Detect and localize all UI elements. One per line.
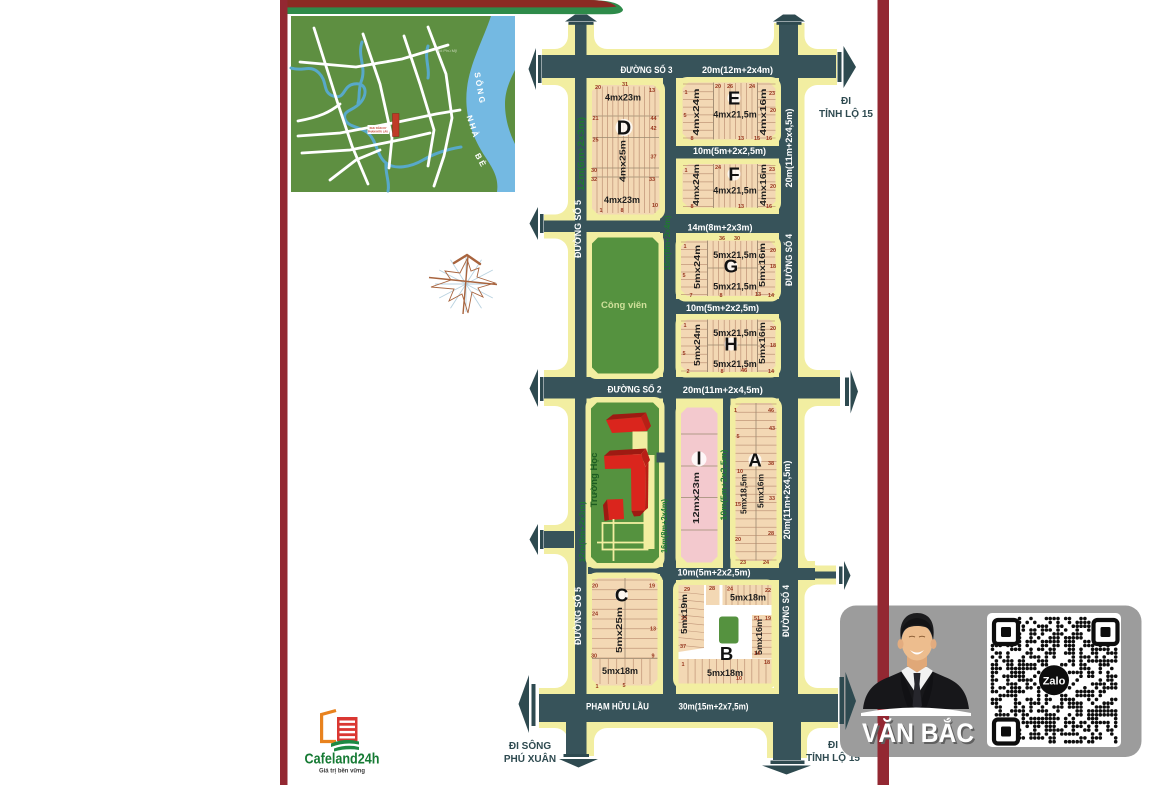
svg-text:33: 33 (681, 616, 687, 622)
svg-text:20: 20 (770, 108, 776, 114)
svg-text:13: 13 (738, 204, 744, 210)
svg-text:33: 33 (649, 177, 655, 183)
svg-text:5mx19m: 5mx19m (680, 594, 689, 634)
svg-text:9: 9 (651, 654, 654, 660)
svg-text:18: 18 (764, 660, 770, 666)
svg-text:1: 1 (683, 244, 686, 250)
svg-text:5: 5 (736, 434, 739, 440)
svg-text:14: 14 (768, 369, 775, 375)
svg-text:VĂN BẮC: VĂN BẮC (862, 717, 974, 748)
svg-text:18: 18 (770, 343, 776, 349)
svg-text:ĐI SÔNG: ĐI SÔNG (509, 739, 551, 752)
svg-text:D: D (617, 118, 631, 140)
svg-text:H: H (724, 334, 737, 355)
svg-text:37: 37 (680, 644, 686, 650)
svg-text:24: 24 (727, 587, 734, 593)
svg-text:4mx24m: 4mx24m (692, 89, 701, 136)
svg-text:5mx16m: 5mx16m (758, 322, 767, 364)
svg-text:38: 38 (768, 461, 774, 467)
svg-text:33: 33 (769, 496, 775, 502)
svg-text:28: 28 (709, 586, 715, 592)
svg-text:16: 16 (766, 136, 772, 142)
svg-text:ĐI: ĐI (841, 96, 851, 107)
svg-text:8: 8 (690, 136, 693, 142)
svg-text:5mx25m: 5mx25m (614, 606, 624, 653)
svg-text:14: 14 (754, 651, 761, 657)
svg-text:5: 5 (682, 273, 685, 279)
svg-text:13: 13 (650, 627, 656, 633)
svg-text:24: 24 (763, 560, 770, 566)
svg-text:20m(12m+2x4m): 20m(12m+2x4m) (702, 65, 773, 76)
svg-text:12mx23m: 12mx23m (691, 471, 701, 524)
svg-text:1: 1 (595, 684, 598, 690)
svg-text:1: 1 (683, 323, 686, 329)
svg-text:20m(11m+2x4,5m): 20m(11m+2x4,5m) (683, 385, 763, 396)
svg-text:18: 18 (770, 264, 776, 270)
svg-text:26: 26 (727, 84, 733, 90)
svg-text:20m(11m+2x4,5m): 20m(11m+2x4,5m) (782, 461, 792, 540)
svg-text:4mx16m: 4mx16m (759, 89, 768, 136)
svg-text:5mx18,5m: 5mx18,5m (740, 474, 749, 514)
svg-text:20: 20 (595, 85, 601, 91)
svg-text:5mx18m: 5mx18m (602, 666, 638, 676)
svg-text:20m(11m+2x4,5m): 20m(11m+2x4,5m) (784, 109, 794, 188)
svg-text:5: 5 (682, 351, 685, 357)
svg-text:1: 1 (684, 168, 687, 174)
svg-text:37: 37 (650, 155, 656, 161)
svg-text:Zalo: Zalo (1043, 676, 1066, 688)
svg-text:5mx16m: 5mx16m (755, 619, 764, 655)
svg-text:10: 10 (737, 469, 743, 475)
svg-text:30: 30 (591, 168, 597, 174)
svg-text:2: 2 (686, 369, 689, 375)
svg-text:16m(8m+2x4m): 16m(8m+2x4m) (659, 499, 669, 553)
svg-text:10m(5m+2x2,5m): 10m(5m+2x2,5m) (693, 146, 766, 157)
svg-text:25: 25 (592, 138, 598, 144)
svg-text:5mx18m: 5mx18m (730, 593, 766, 603)
svg-text:20: 20 (592, 584, 598, 590)
svg-text:ĐƯỜNG SỐ 5: ĐƯỜNG SỐ 5 (572, 200, 583, 258)
svg-text:F: F (728, 164, 739, 185)
svg-text:ĐI: ĐI (828, 740, 838, 751)
svg-text:24: 24 (592, 612, 599, 618)
svg-text:4mx25m: 4mx25m (618, 139, 628, 182)
svg-text:1: 1 (684, 90, 687, 96)
svg-text:12m(6m+2x3m): 12m(6m+2x3m) (576, 117, 586, 191)
svg-text:10m(5m+2x2,5m): 10m(5m+2x2,5m) (720, 449, 729, 520)
svg-text:23: 23 (769, 91, 775, 97)
svg-text:A: A (748, 450, 761, 471)
svg-text:TỈNH LỘ 15: TỈNH LỘ 15 (819, 107, 873, 120)
svg-text:44: 44 (650, 116, 657, 122)
svg-text:29: 29 (684, 587, 690, 593)
svg-text:Công viên: Công viên (601, 300, 647, 311)
svg-text:14: 14 (768, 293, 775, 299)
svg-text:20: 20 (770, 326, 776, 332)
svg-text:24: 24 (715, 165, 722, 171)
svg-text:28: 28 (768, 531, 774, 537)
svg-text:5mx24m: 5mx24m (693, 245, 702, 289)
svg-text:22: 22 (765, 588, 771, 594)
svg-text:4mx16m: 4mx16m (759, 164, 768, 206)
svg-text:15: 15 (754, 136, 760, 142)
svg-text:5mx24m: 5mx24m (693, 324, 702, 366)
svg-text:30: 30 (734, 236, 740, 242)
svg-text:Trường Học: Trường Học (589, 453, 600, 508)
svg-text:21: 21 (592, 116, 598, 122)
svg-text:20: 20 (770, 248, 776, 254)
svg-text:20: 20 (715, 84, 721, 90)
svg-text:24: 24 (749, 84, 756, 90)
svg-text:5: 5 (622, 683, 625, 689)
svg-text:4mx21,5m: 4mx21,5m (713, 186, 757, 196)
svg-text:Giá trị bền vững: Giá trị bền vững (319, 769, 365, 775)
svg-text:Gò Phú Mỹ: Gò Phú Mỹ (437, 48, 457, 53)
svg-text:20: 20 (770, 184, 776, 190)
svg-text:51: 51 (754, 616, 760, 622)
svg-text:E: E (728, 88, 740, 109)
svg-text:8: 8 (720, 369, 723, 375)
svg-text:4mx23m: 4mx23m (605, 93, 641, 103)
svg-text:C: C (615, 585, 628, 606)
svg-text:31: 31 (622, 82, 628, 88)
svg-text:36: 36 (719, 236, 725, 242)
svg-text:Cafeland24h: Cafeland24h (305, 751, 380, 768)
svg-text:7: 7 (689, 293, 692, 299)
svg-text:46: 46 (768, 408, 774, 414)
svg-text:ĐƯỜNG SỐ 2: ĐƯỜNG SỐ 2 (608, 384, 662, 396)
svg-text:12m(6m+2x3m): 12m(6m+2x3m) (577, 501, 587, 562)
svg-text:1: 1 (681, 662, 684, 668)
svg-text:PHẠM HỮU LẦU: PHẠM HỮU LẦU (586, 701, 649, 712)
svg-text:5mx21,5m: 5mx21,5m (713, 359, 757, 369)
svg-text:20: 20 (735, 537, 741, 543)
svg-text:B: B (720, 643, 733, 664)
svg-text:30m(15m+2x7,5m): 30m(15m+2x7,5m) (679, 702, 749, 712)
svg-text:5mx16m: 5mx16m (757, 474, 766, 508)
svg-text:4mx21,5m: 4mx21,5m (713, 110, 757, 120)
svg-text:16m(8m+2x4m): 16m(8m+2x4m) (662, 215, 672, 270)
svg-text:PHÚ XUÂN: PHÚ XUÂN (504, 752, 556, 765)
svg-text:15: 15 (735, 502, 741, 508)
svg-text:ĐƯỜNG SỐ 3: ĐƯỜNG SỐ 3 (621, 64, 673, 76)
svg-text:8: 8 (620, 208, 623, 214)
svg-text:19: 19 (765, 616, 771, 622)
svg-text:23: 23 (769, 167, 775, 173)
svg-text:10m(5m+2x2,5m): 10m(5m+2x2,5m) (686, 303, 759, 314)
svg-text:13: 13 (649, 88, 655, 94)
svg-text:I: I (696, 449, 701, 469)
svg-text:G: G (724, 256, 738, 277)
svg-text:1: 1 (599, 208, 602, 214)
svg-text:8: 8 (719, 293, 722, 299)
svg-text:10: 10 (736, 676, 742, 682)
svg-text:19: 19 (649, 584, 655, 590)
svg-text:4mx23m: 4mx23m (604, 195, 640, 205)
svg-text:5: 5 (683, 113, 686, 119)
svg-text:23: 23 (740, 560, 746, 566)
svg-text:8: 8 (690, 204, 693, 210)
svg-text:13: 13 (755, 292, 761, 298)
svg-text:5mx16m: 5mx16m (758, 243, 767, 287)
svg-text:13: 13 (738, 136, 744, 142)
svg-text:4mx24m: 4mx24m (692, 164, 701, 206)
svg-text:1: 1 (734, 408, 737, 414)
svg-text:5mx21,5m: 5mx21,5m (713, 282, 757, 292)
svg-text:42: 42 (650, 126, 656, 132)
svg-text:32: 32 (591, 177, 597, 183)
svg-text:46: 46 (741, 368, 747, 374)
svg-text:30: 30 (591, 654, 597, 660)
svg-text:14m(8m+2x3m): 14m(8m+2x3m) (688, 223, 753, 234)
svg-text:ĐƯỜNG SỐ 4: ĐƯỜNG SỐ 4 (780, 585, 791, 637)
svg-text:10m(5m+2x2,5m): 10m(5m+2x2,5m) (678, 568, 751, 579)
svg-text:ĐƯỜNG SỐ 5: ĐƯỜNG SỐ 5 (572, 587, 583, 645)
svg-text:10: 10 (652, 203, 658, 209)
svg-text:ĐƯỜNG SỐ 4: ĐƯỜNG SỐ 4 (783, 234, 794, 286)
svg-text:43: 43 (769, 426, 775, 432)
svg-text:16: 16 (766, 204, 772, 210)
